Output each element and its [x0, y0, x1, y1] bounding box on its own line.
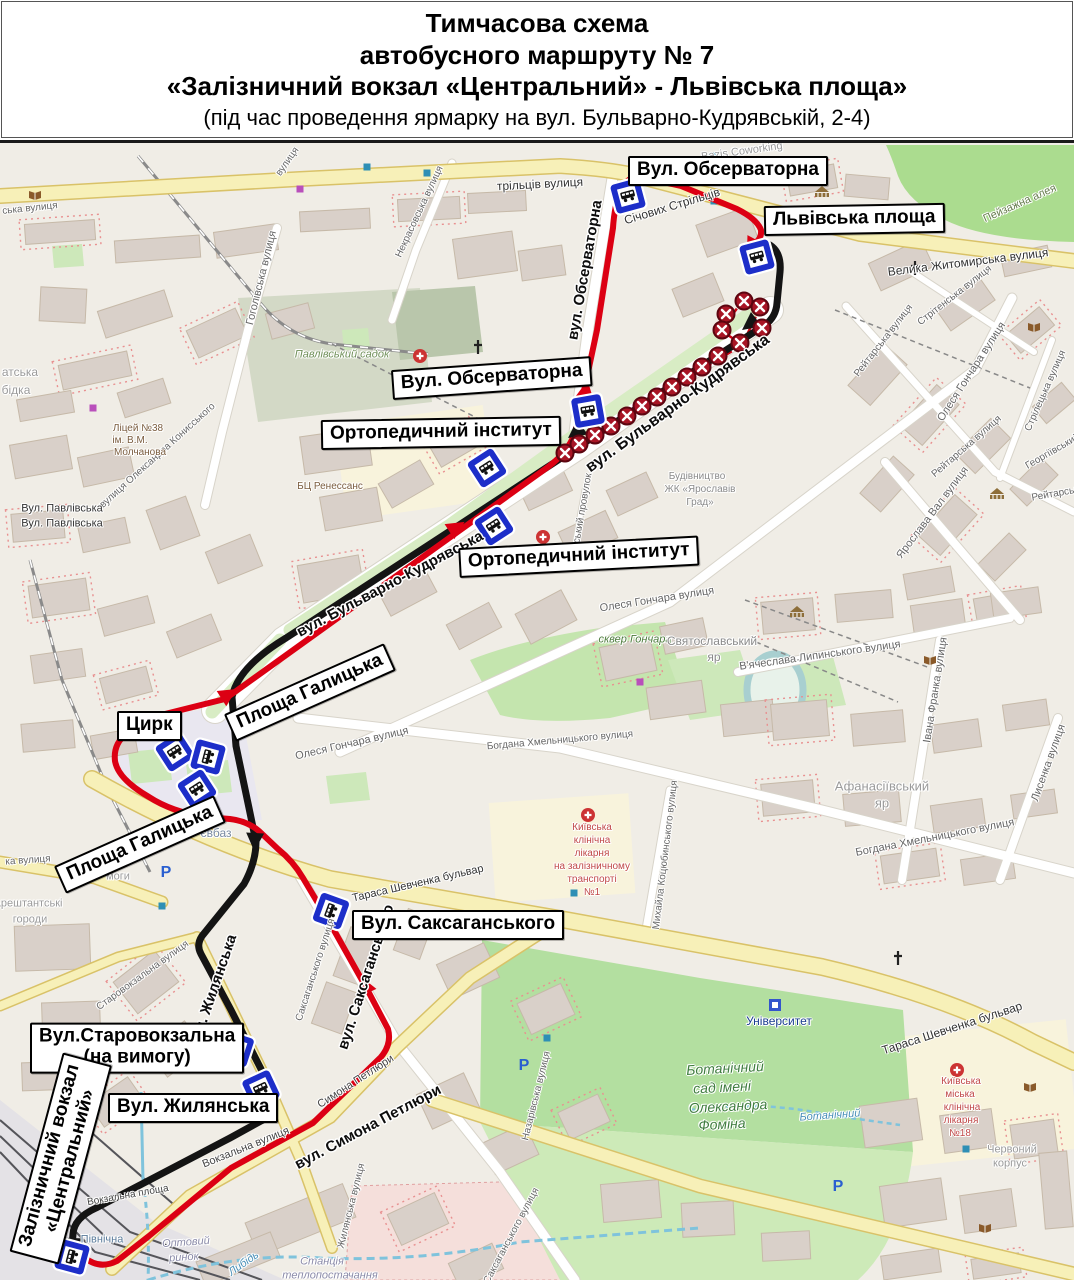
transit-stop-dot [571, 890, 578, 897]
map-canvas: PPP [0, 0, 1074, 1280]
building [11, 510, 65, 542]
building [518, 245, 566, 281]
closed-section-mark [679, 369, 696, 386]
building [468, 190, 527, 213]
building [835, 590, 893, 623]
green-area [52, 244, 84, 268]
bus-stop-icon [52, 1237, 91, 1276]
transit-stop-dot [963, 1146, 970, 1153]
building [844, 174, 890, 200]
closed-section-mark [714, 322, 731, 339]
title-line-4: (під час проведення ярмарку на вул. Буль… [2, 103, 1072, 133]
closed-section-mark [710, 348, 727, 365]
building [771, 700, 830, 741]
green-area [326, 772, 370, 804]
building [453, 231, 518, 279]
parking-icon: P [161, 864, 172, 881]
route-scheme-poster: PPP Bazis Coworkingтрільців вулицяСічови… [0, 0, 1074, 1280]
building [879, 1178, 946, 1228]
parking-icon: P [519, 1057, 530, 1074]
shop-icon [297, 186, 304, 193]
bus-stop-icon [737, 237, 776, 276]
building [761, 1231, 810, 1261]
hospital-icon [413, 349, 427, 363]
transit-stop-dot [709, 153, 716, 160]
building [851, 710, 906, 746]
shop-icon [90, 405, 97, 412]
metro-icon-glyph [772, 1002, 778, 1008]
transit-stop-dot [364, 164, 371, 171]
closed-section-mark [649, 389, 666, 406]
closed-section-mark [732, 335, 749, 352]
title-line-2: автобусного маршруту № 7 [2, 40, 1072, 72]
map-background: PPP [0, 0, 1074, 1280]
transit-stop-dot [544, 1035, 551, 1042]
bus-stop-icon [569, 392, 606, 429]
transit-stop-dot [159, 903, 166, 910]
closed-section-mark [718, 306, 735, 323]
closed-section-mark [752, 299, 769, 316]
hospital-icon [950, 1063, 964, 1077]
institution-area [489, 793, 636, 903]
closed-section-mark [557, 445, 574, 462]
building [24, 220, 95, 245]
title-block: Тимчасова схема автобусного маршруту № 7… [0, 0, 1074, 143]
building [22, 1061, 75, 1091]
closed-section-mark [619, 408, 636, 425]
title-line-1: Тимчасова схема [2, 8, 1072, 40]
transit-stop-dot [424, 170, 431, 177]
building [21, 720, 75, 752]
building [681, 1201, 735, 1238]
building [300, 208, 371, 232]
closed-section-mark [694, 359, 711, 376]
parking-icon: P [833, 1178, 844, 1195]
building [1002, 699, 1049, 731]
hospital-icon [581, 808, 595, 822]
closed-section-mark [587, 427, 604, 444]
building [39, 287, 87, 323]
building [1039, 1151, 1074, 1229]
building [600, 1180, 661, 1223]
building [14, 924, 91, 972]
building [42, 1001, 101, 1031]
stream [141, 1092, 143, 1180]
hospital-icon [536, 530, 550, 544]
closed-section-mark [754, 320, 771, 337]
shop-icon [637, 679, 644, 686]
closed-section-mark [634, 398, 651, 415]
bus-stop-icon [608, 176, 647, 215]
title-block-inner: Тимчасова схема автобусного маршруту № 7… [1, 1, 1073, 138]
title-line-3: «Залізничний вокзал «Центральний» - Льві… [2, 71, 1072, 103]
closed-section-mark [736, 293, 753, 310]
green-area [392, 286, 483, 360]
building [930, 719, 981, 753]
closed-section-mark [664, 379, 681, 396]
